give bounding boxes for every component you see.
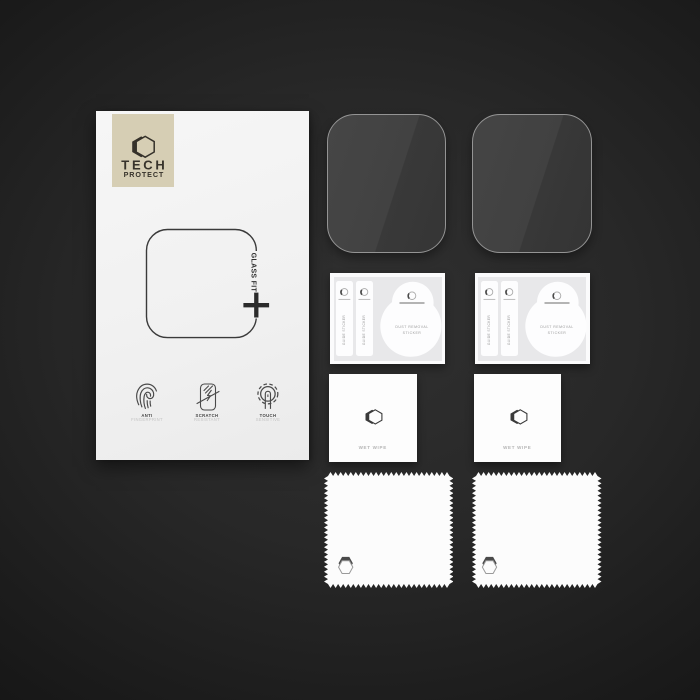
svg-text:DUST REMOVAL: DUST REMOVAL <box>395 325 428 329</box>
svg-text:GUIDE STICKER: GUIDE STICKER <box>362 315 366 345</box>
svg-text:DUST REMOVAL: DUST REMOVAL <box>540 325 573 329</box>
svg-text:STICKER: STICKER <box>547 331 566 335</box>
svg-text:GLASS FIT: GLASS FIT <box>250 253 257 293</box>
svg-text:STICKER: STICKER <box>403 331 422 335</box>
svg-text:GUIDE STICKER: GUIDE STICKER <box>506 315 510 345</box>
svg-text:GUIDE STICKER: GUIDE STICKER <box>342 315 346 345</box>
svg-text:GUIDE STICKER: GUIDE STICKER <box>486 315 490 345</box>
